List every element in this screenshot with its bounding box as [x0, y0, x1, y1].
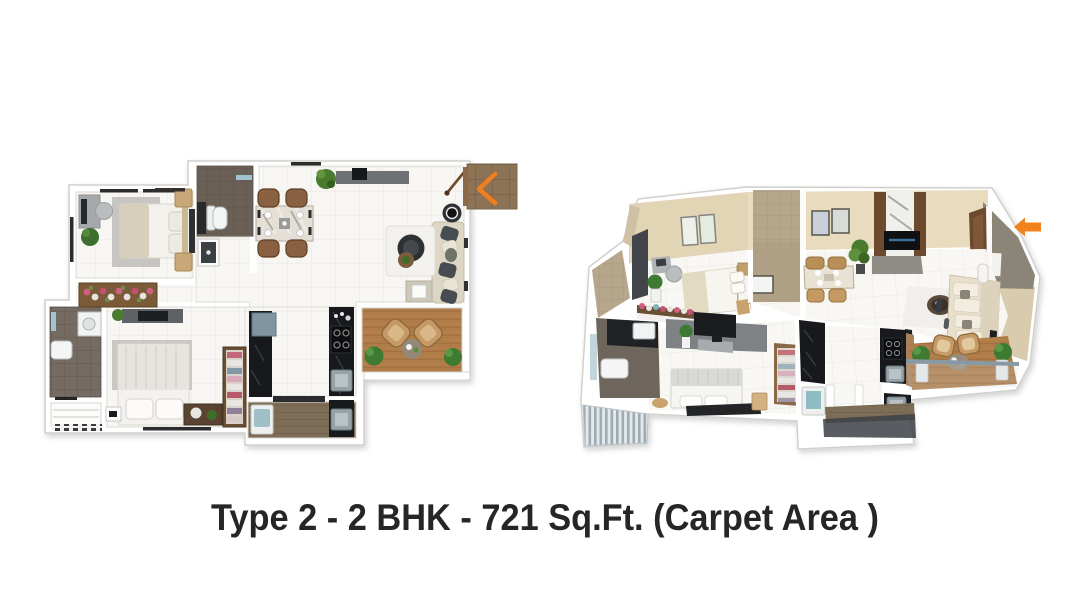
svg-text:Type 2 - 2 BHK - 721 Sq.Ft. (C: Type 2 - 2 BHK - 721 Sq.Ft. (Carpet Area…: [211, 497, 879, 538]
